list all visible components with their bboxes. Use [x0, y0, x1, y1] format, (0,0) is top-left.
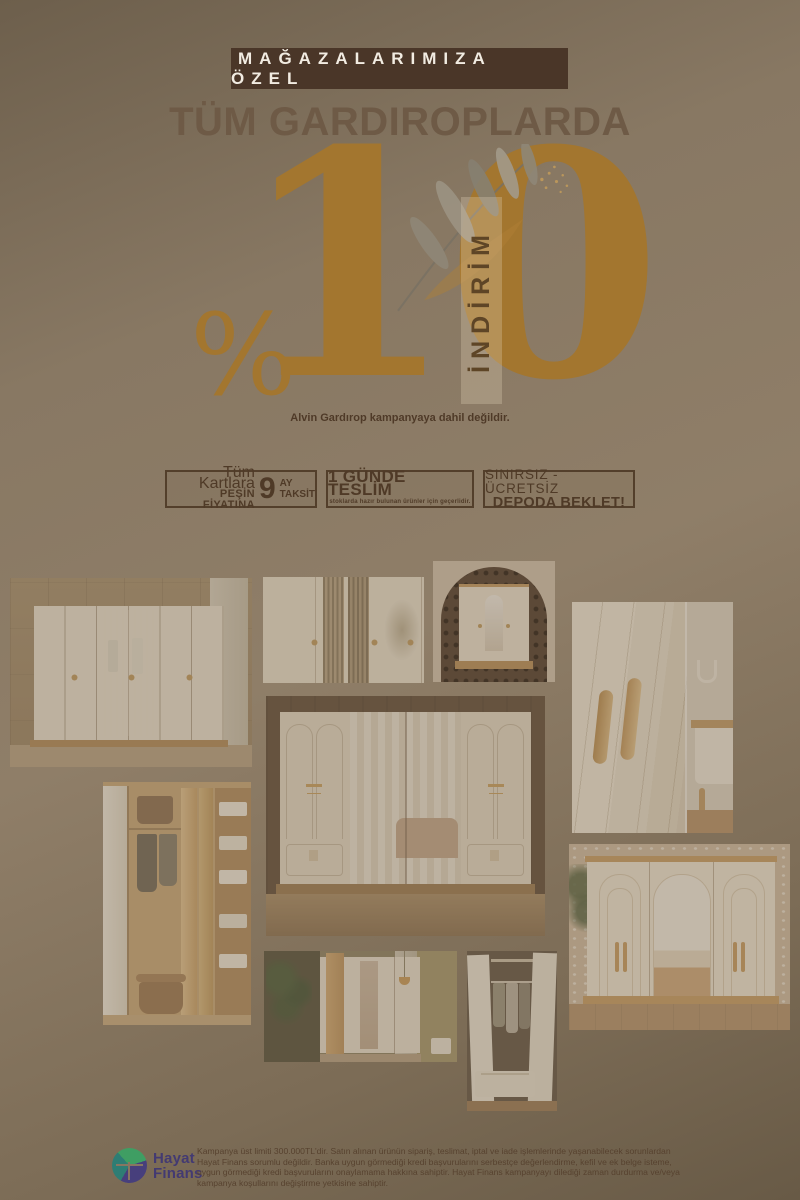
photo-door-handles-closeup: [572, 602, 733, 833]
photo-arched-cream-wardrobe: [569, 844, 790, 1030]
installments-unit2: TAKSİT: [280, 489, 315, 500]
delivery-title: 1 GÜNDE TESLİM: [328, 470, 472, 496]
installments-unit1: AY: [280, 478, 315, 489]
logo-line1: Hayat: [153, 1151, 203, 1166]
photo-wardrobe-arch-niche: [433, 561, 555, 682]
offer-badge-installments: Tüm Kartlara PEŞİN FİYATINA 9 AY TAKSİT: [165, 470, 317, 508]
installments-line1: Tüm Kartlara: [167, 467, 255, 489]
hayat-finans-logo: Hayat Finans: [112, 1148, 203, 1183]
photo-wardrobe-plant-lamp: [264, 951, 457, 1062]
storage-line2: DEPODA BEKLET!: [493, 496, 626, 510]
photo-open-wardrobe-interior: [103, 782, 251, 1025]
photo-wardrobe-arched-glass: [10, 578, 252, 767]
photo-wardrobe-fluted-glass: [263, 577, 424, 683]
logo-line2: Finans: [153, 1166, 203, 1181]
offer-badge-storage: SINIRSIZ - ÜCRETSİZ DEPODA BEKLET!: [483, 470, 635, 508]
installments-count: 9: [259, 475, 276, 503]
photo-open-white-wardrobe: [467, 951, 557, 1111]
legal-text: Kampanya üst limiti 300.000TL'dir. Satın…: [197, 1146, 695, 1188]
storage-line1: SINIRSIZ - ÜCRETSİZ: [485, 468, 633, 496]
photo-wardrobe-mirror-bedroom: [266, 696, 545, 936]
installments-line2: PEŞİN FİYATINA: [167, 489, 255, 511]
delivery-note: stoklarda hazır bulunan ürünler için geç…: [329, 496, 470, 509]
discount-label: İNDİRİM: [467, 228, 496, 373]
hayat-finans-logo-icon: [112, 1148, 147, 1183]
offer-badge-delivery: 1 GÜNDE TESLİM stoklarda hazır bulunan ü…: [326, 470, 474, 508]
discount-label-band: İNDİRİM: [461, 197, 502, 404]
